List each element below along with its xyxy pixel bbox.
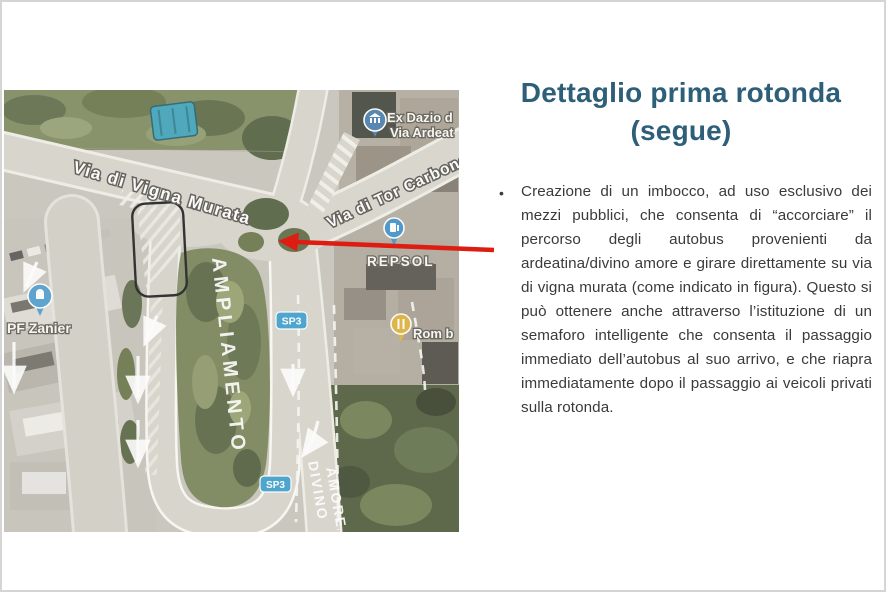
aerial-map: Via di Vigna Murata Via di Tor Carbone E…: [4, 90, 459, 532]
slide-title-line2: (segue): [631, 115, 732, 146]
scan-wash: [4, 90, 459, 532]
bullet-icon: •: [499, 180, 521, 420]
aerial-map-drawing: Via di Vigna Murata Via di Tor Carbone E…: [4, 90, 459, 532]
slide-title-line1: Dettaglio prima rotonda: [521, 77, 841, 108]
body-paragraph: Creazione di un imbocco, ad uso esclusiv…: [521, 180, 872, 420]
text-column: Dettaglio prima rotonda (segue) • Creazi…: [490, 2, 872, 420]
slide-title: Dettaglio prima rotonda (segue): [490, 74, 872, 150]
bullet-item: • Creazione di un imbocco, ad uso esclus…: [490, 180, 872, 420]
presentation-slide: Via di Vigna Murata Via di Tor Carbone E…: [0, 0, 886, 592]
